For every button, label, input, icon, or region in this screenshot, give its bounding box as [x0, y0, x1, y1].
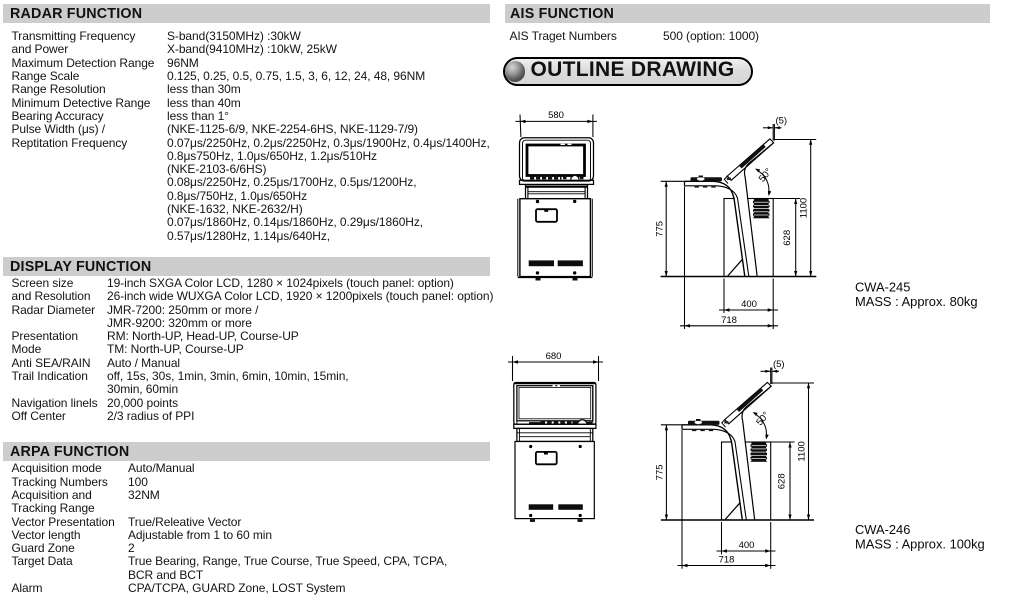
svg-text:718: 718 — [719, 555, 735, 566]
svg-text:628: 628 — [782, 230, 793, 246]
svg-text:50°: 50° — [754, 410, 772, 428]
svg-text:MASS : Approx. 80kg: MASS : Approx. 80kg — [855, 294, 978, 309]
svg-text:(5): (5) — [775, 115, 787, 126]
svg-text:CWA-245: CWA-245 — [855, 280, 910, 295]
svg-text:MASS : Approx. 100kg: MASS : Approx. 100kg — [855, 537, 985, 552]
svg-text:628: 628 — [777, 473, 788, 489]
svg-text:1100: 1100 — [799, 198, 810, 218]
svg-text:1100: 1100 — [796, 441, 807, 461]
svg-text:580: 580 — [548, 110, 564, 121]
svg-text:CWA-246: CWA-246 — [855, 522, 910, 537]
svg-text:(5): (5) — [773, 359, 785, 370]
svg-text:718: 718 — [721, 315, 737, 326]
svg-text:50°: 50° — [757, 166, 775, 184]
svg-text:680: 680 — [546, 351, 562, 362]
svg-text:775: 775 — [655, 464, 666, 480]
svg-text:400: 400 — [739, 540, 755, 551]
svg-text:775: 775 — [655, 221, 666, 237]
svg-text:400: 400 — [741, 299, 757, 310]
